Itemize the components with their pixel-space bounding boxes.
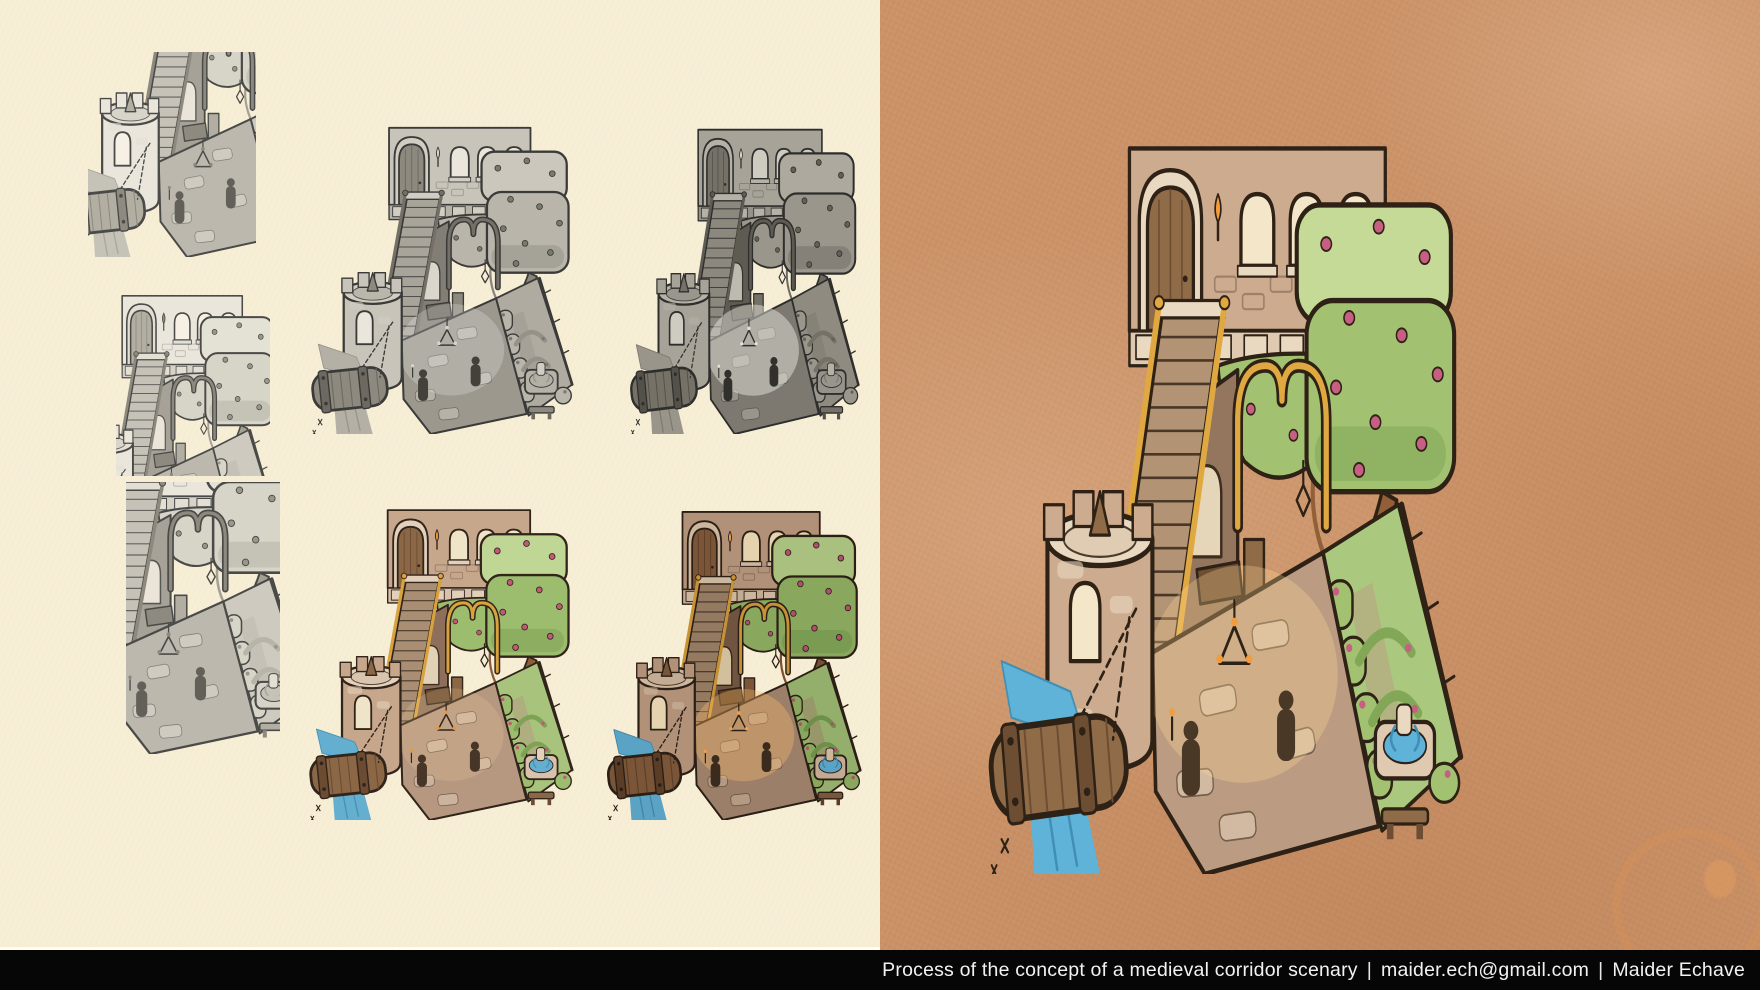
grayscale-lighting-study-artwork <box>622 106 860 434</box>
caption-author: Maider Echave <box>1612 959 1745 982</box>
grayscale-lighting-study <box>622 106 860 434</box>
caption-bar: Process of the concept of a medieval cor… <box>0 950 1760 990</box>
caption-separator: | <box>1598 959 1603 982</box>
caption-separator: | <box>1367 959 1372 982</box>
coffee-stain-blot <box>1704 860 1736 898</box>
thumbnail-sketch-3 <box>126 482 280 754</box>
caption-title: Process of the concept of a medieval cor… <box>882 959 1358 982</box>
color-study-flat-artwork <box>300 486 574 820</box>
caption-email: maider.ech@gmail.com <box>1381 959 1589 982</box>
thumbnail-sketch-2 <box>116 286 270 476</box>
color-study-flat <box>300 486 574 820</box>
color-lighting-study-artwork <box>598 488 862 820</box>
thumbnail-sketch-2-artwork <box>116 286 270 476</box>
grayscale-value-study-artwork <box>302 104 574 434</box>
thumbnail-sketch-3-artwork <box>126 482 280 754</box>
thumbnail-sketch-1-artwork <box>88 52 256 257</box>
color-lighting-study <box>598 488 862 820</box>
grayscale-value-study <box>302 104 574 434</box>
final-illustration <box>972 92 1464 874</box>
final-illustration-artwork <box>972 92 1464 874</box>
process-sheet: Process of the concept of a medieval cor… <box>0 0 1760 990</box>
thumbnail-sketch-1 <box>88 52 256 257</box>
